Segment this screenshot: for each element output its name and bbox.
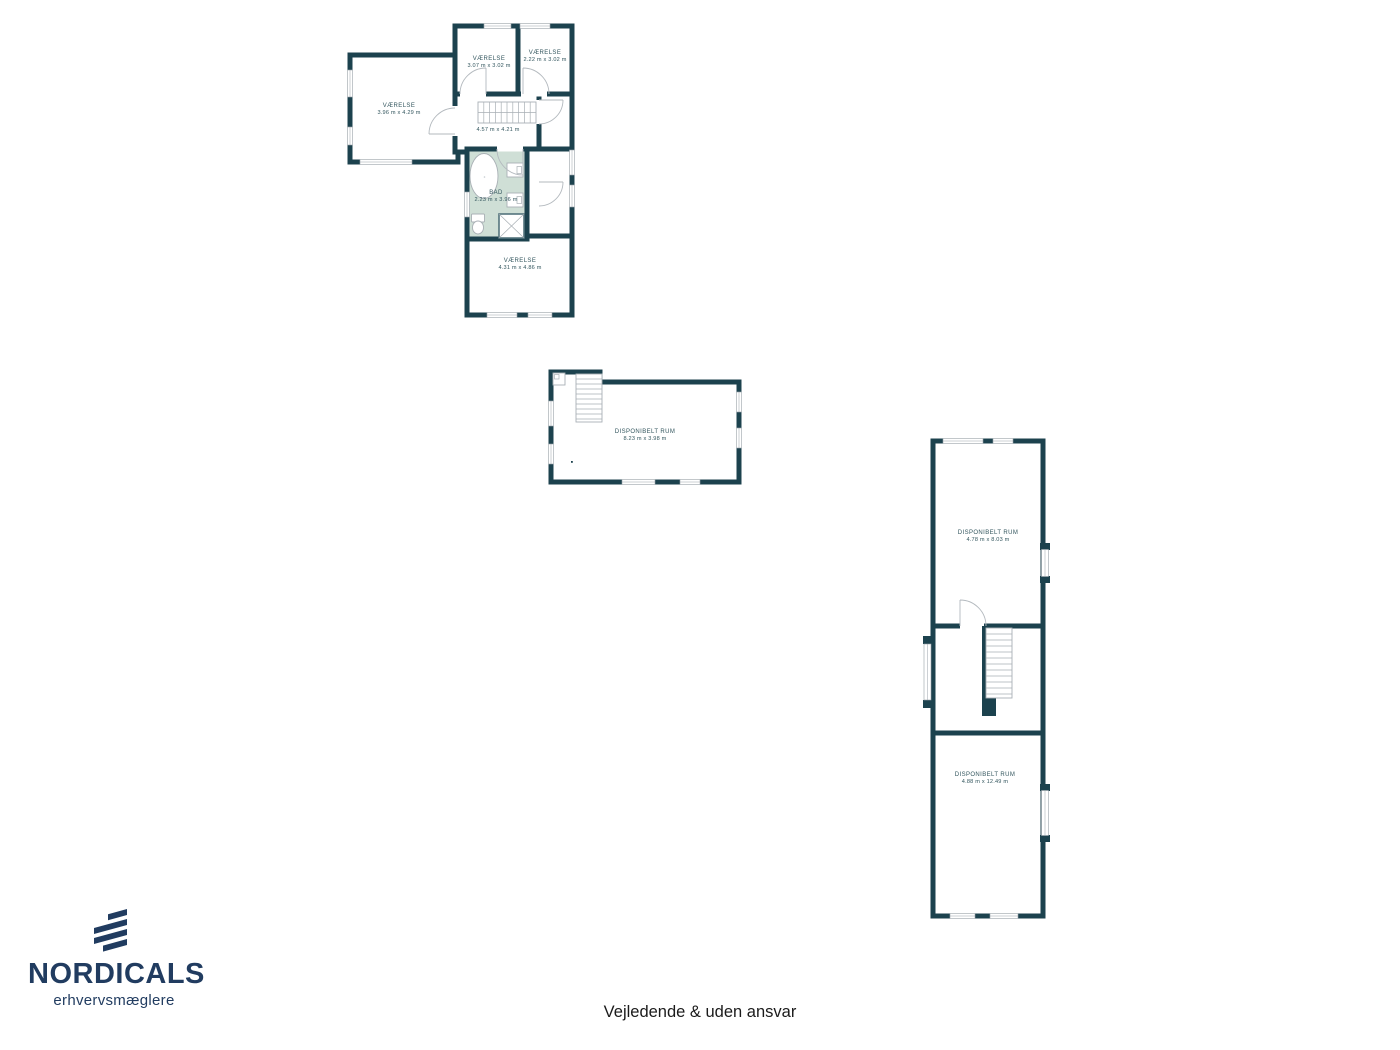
room-name: VÆRELSE xyxy=(498,257,541,265)
floorplan-upper-floor: VÆRELSE 3.96 m x 4.29 m VÆRELSE 3.07 m x… xyxy=(343,20,575,319)
room-label: DISPONIBELT RUM 4.88 m x 12.49 m xyxy=(955,771,1015,787)
room-dimensions: 2.22 m x 3.02 m xyxy=(523,57,566,65)
staircase-icon xyxy=(478,102,536,123)
staircase-icon xyxy=(576,374,602,422)
room-dimensions: 4.31 m x 4.86 m xyxy=(498,265,541,273)
room-label: DISPONIBELT RUM 4.78 m x 8.03 m xyxy=(958,529,1018,545)
marker-dot xyxy=(571,461,573,463)
shower-icon xyxy=(499,214,524,238)
disclaimer-text: Vejledende & uden ansvar xyxy=(0,1003,1400,1022)
room-dimensions: 3.96 m x 4.29 m xyxy=(377,110,420,118)
room-dimensions: 8.23 m x 3.98 m xyxy=(615,436,675,444)
room-dimensions: 4.78 m x 8.03 m xyxy=(958,537,1018,545)
floorplan-loft-drawing xyxy=(546,366,744,487)
room-label: DISPONIBELT RUM 8.23 m x 3.98 m xyxy=(615,428,675,444)
room-dimensions: 3.07 m x 3.02 m xyxy=(467,63,510,71)
room-label: VÆRELSE 3.07 m x 3.02 m xyxy=(467,55,510,71)
room-label: VÆRELSE 4.31 m x 4.86 m xyxy=(498,257,541,273)
room-dimensions: 4.88 m x 12.49 m xyxy=(955,779,1015,787)
room-name: BAD xyxy=(474,189,517,197)
room-name: DISPONIBELT RUM xyxy=(955,771,1015,779)
nordicals-logo-icon xyxy=(89,908,139,956)
room-label: 4.57 m x 4.21 m xyxy=(476,127,519,135)
room-label: BAD 2.23 m x 3.96 m xyxy=(474,189,517,205)
room-label: VÆRELSE 2.22 m x 3.02 m xyxy=(523,49,566,65)
nordicals-logo: NORDICALS erhvervsmæglere xyxy=(28,908,200,1009)
room-name: DISPONIBELT RUM xyxy=(615,428,675,436)
room-dimensions: 4.57 m x 4.21 m xyxy=(476,127,519,135)
floorplan-outbuilding-drawing xyxy=(920,432,1052,921)
room-name: DISPONIBELT RUM xyxy=(958,529,1018,537)
room-label: VÆRELSE 3.96 m x 4.29 m xyxy=(377,102,420,118)
room-dimensions: 2.23 m x 3.96 m xyxy=(474,197,517,205)
room-name: VÆRELSE xyxy=(377,102,420,110)
floorplan-outbuilding: DISPONIBELT RUM 4.78 m x 8.03 m DISPONIB… xyxy=(920,432,1052,921)
company-name: NORDICALS xyxy=(28,958,200,991)
staircase-icon xyxy=(986,628,1012,698)
room-name: VÆRELSE xyxy=(467,55,510,63)
toilet-icon xyxy=(472,214,485,234)
stair-newel xyxy=(982,698,996,716)
fixture-icon xyxy=(553,373,565,385)
room-name: VÆRELSE xyxy=(523,49,566,57)
floorplan-loft: DISPONIBELT RUM 8.23 m x 3.98 m xyxy=(546,366,744,487)
